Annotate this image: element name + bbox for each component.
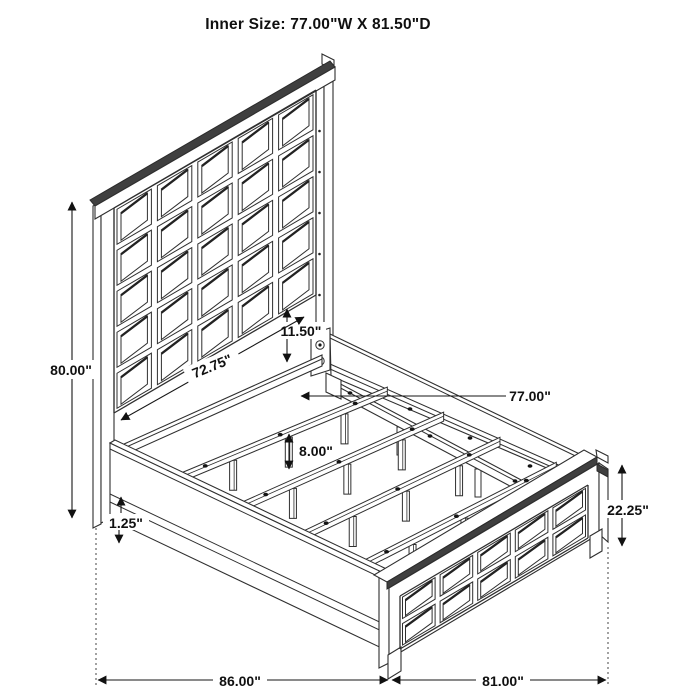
slat: [234, 412, 443, 518]
slat-leg: [289, 488, 296, 518]
screw-dot: [324, 521, 329, 525]
dim-footboard-height: 22.25": [601, 465, 654, 546]
dim-overall-depth: 86.00": [98, 671, 388, 689]
svg-text:11.50": 11.50": [281, 323, 322, 339]
screw-dot: [263, 493, 268, 497]
slat-leg: [398, 440, 405, 470]
screw-dot: [454, 514, 459, 518]
svg-text:80.00": 80.00": [50, 362, 92, 378]
screw-mark: [318, 253, 321, 256]
footboard-cap-end: [596, 450, 608, 463]
headboard-right-post-side: [324, 72, 333, 356]
svg-text:86.00": 86.00": [219, 673, 261, 689]
diagram-title: Inner Size: 77.00"W X 81.50"D: [205, 16, 431, 33]
screw-dot: [384, 550, 389, 554]
dim-overall-width: 81.00": [392, 671, 606, 689]
bed-frame-diagram: Inner Size: 77.00"W X 81.50"D: [0, 0, 700, 700]
screw-dot: [410, 427, 415, 431]
screw-dot: [353, 402, 358, 406]
screw-mark: [318, 294, 321, 297]
svg-text:8.00": 8.00": [299, 443, 333, 459]
screw-mark: [318, 212, 321, 215]
slat: [173, 387, 387, 490]
svg-text:22.25": 22.25": [607, 502, 649, 518]
dim-headboard-height: 80.00": [48, 202, 96, 518]
screw-mark: [318, 171, 321, 174]
svg-text:1.25": 1.25": [109, 515, 143, 531]
screw-dot: [467, 453, 472, 457]
svg-text:81.00": 81.00": [482, 673, 524, 689]
screw-mark: [318, 130, 321, 133]
screw-dot: [278, 433, 283, 437]
slat-leg: [341, 414, 348, 444]
screw-dot: [203, 464, 208, 468]
screw-dot: [524, 479, 529, 483]
svg-text:77.00": 77.00": [509, 388, 551, 404]
slat-leg: [456, 466, 463, 496]
product-dimension-diagram: Inner Size: 77.00"W X 81.50"D: [0, 0, 700, 700]
slat-leg: [230, 460, 237, 490]
screw-dot: [395, 487, 400, 491]
center-rail-leg: [475, 469, 481, 497]
slat-leg: [349, 516, 356, 546]
headboard-right-post: [316, 72, 324, 362]
slat-leg: [344, 464, 351, 494]
slat-leg: [402, 491, 409, 521]
screw-dot: [336, 460, 341, 464]
